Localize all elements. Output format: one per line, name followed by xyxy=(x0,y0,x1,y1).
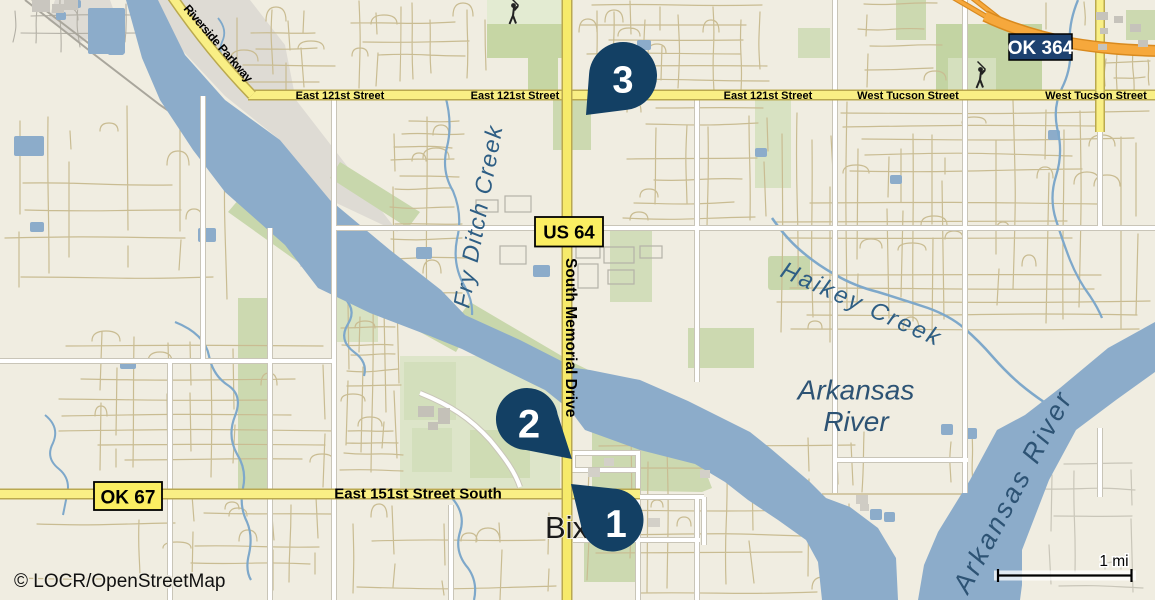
svg-text:East 121st Street: East 121st Street xyxy=(724,90,813,102)
svg-text:OK 67: OK 67 xyxy=(101,488,156,509)
svg-text:Arkansas: Arkansas xyxy=(796,375,915,406)
svg-text:US 64: US 64 xyxy=(543,222,595,243)
svg-text:West Tucson Street: West Tucson Street xyxy=(857,90,959,102)
svg-text:3: 3 xyxy=(612,60,633,102)
svg-text:1: 1 xyxy=(605,503,627,546)
svg-text:© LOCR/OpenStreetMap: © LOCR/OpenStreetMap xyxy=(14,571,225,592)
svg-text:1 mi: 1 mi xyxy=(1099,553,1128,570)
svg-text:West Tucson Street: West Tucson Street xyxy=(1045,90,1147,102)
svg-text:East 121st Street: East 121st Street xyxy=(296,90,385,102)
svg-text:East 151st Street South: East 151st Street South xyxy=(334,486,502,503)
svg-text:South Memorial Drive: South Memorial Drive xyxy=(562,258,579,418)
svg-text:OK 364: OK 364 xyxy=(1008,38,1074,59)
svg-text:River: River xyxy=(823,406,890,437)
svg-text:2: 2 xyxy=(518,403,540,447)
svg-text:East 121st Street: East 121st Street xyxy=(471,90,560,102)
